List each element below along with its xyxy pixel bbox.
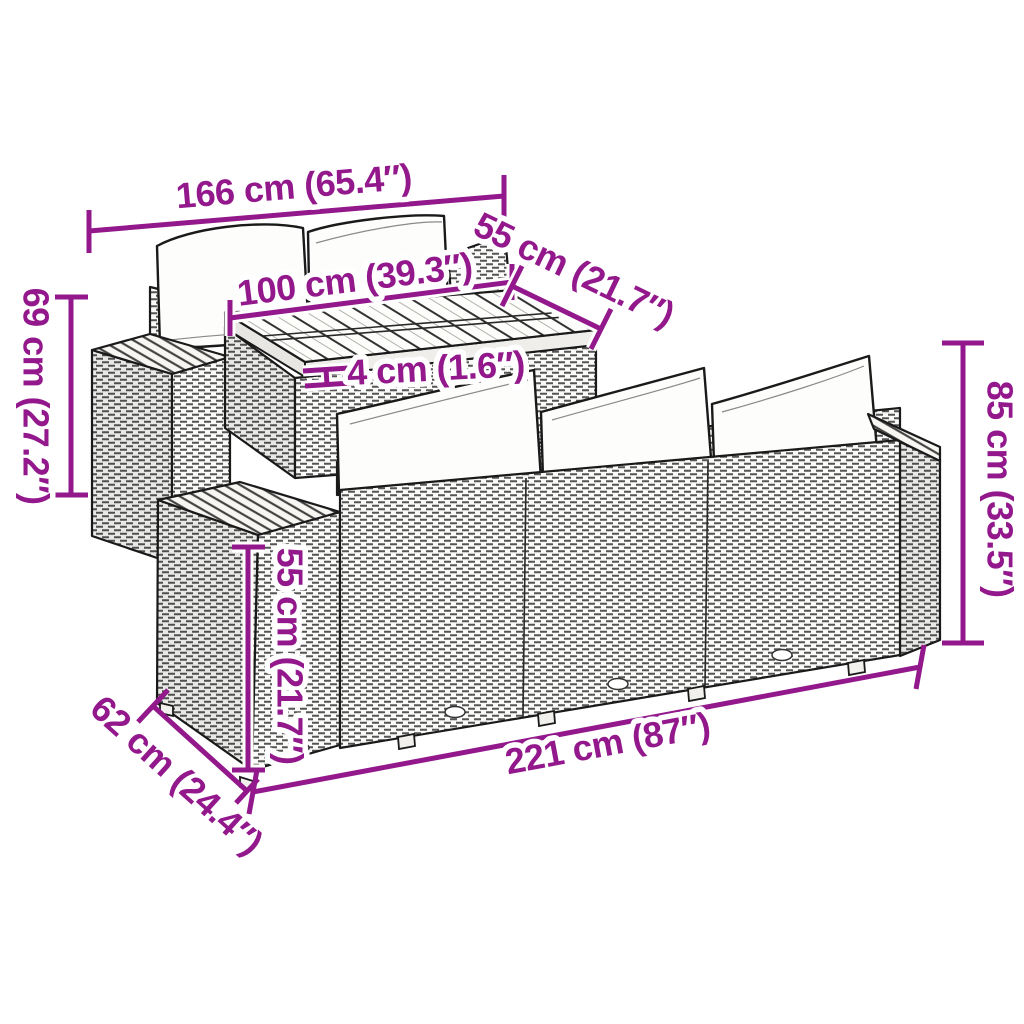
dimension-left-section-height-label: 69 cm (27.2″) xyxy=(15,288,56,505)
furniture-dimension-illustration: 166 cm (65.4″) 100 cm (39.3″) 55 cm (21.… xyxy=(0,0,1024,1024)
dimension-sofa-height: 85 cm (33.5″) xyxy=(942,343,1020,643)
product-dimension-diagram: 166 cm (65.4″) 100 cm (39.3″) 55 cm (21.… xyxy=(0,0,1024,1024)
dimension-left-section-height: 69 cm (27.2″) xyxy=(15,288,88,505)
sofa-vent-2 xyxy=(608,679,628,690)
sofa-vent-3 xyxy=(772,650,792,661)
dimension-seat-height-label: 55 cm (21.7″) xyxy=(269,548,310,765)
sofa-right-side-shading xyxy=(900,442,940,656)
dimension-left-section-height-line xyxy=(55,297,88,495)
dimension-sofa-height-label: 85 cm (33.5″) xyxy=(979,381,1020,598)
dimension-sofa-height-line xyxy=(942,343,984,643)
sofa-front-face xyxy=(340,440,900,748)
sofa-vent-1 xyxy=(445,707,465,718)
dimension-seat-height: 55 cm (21.7″) xyxy=(232,547,310,770)
